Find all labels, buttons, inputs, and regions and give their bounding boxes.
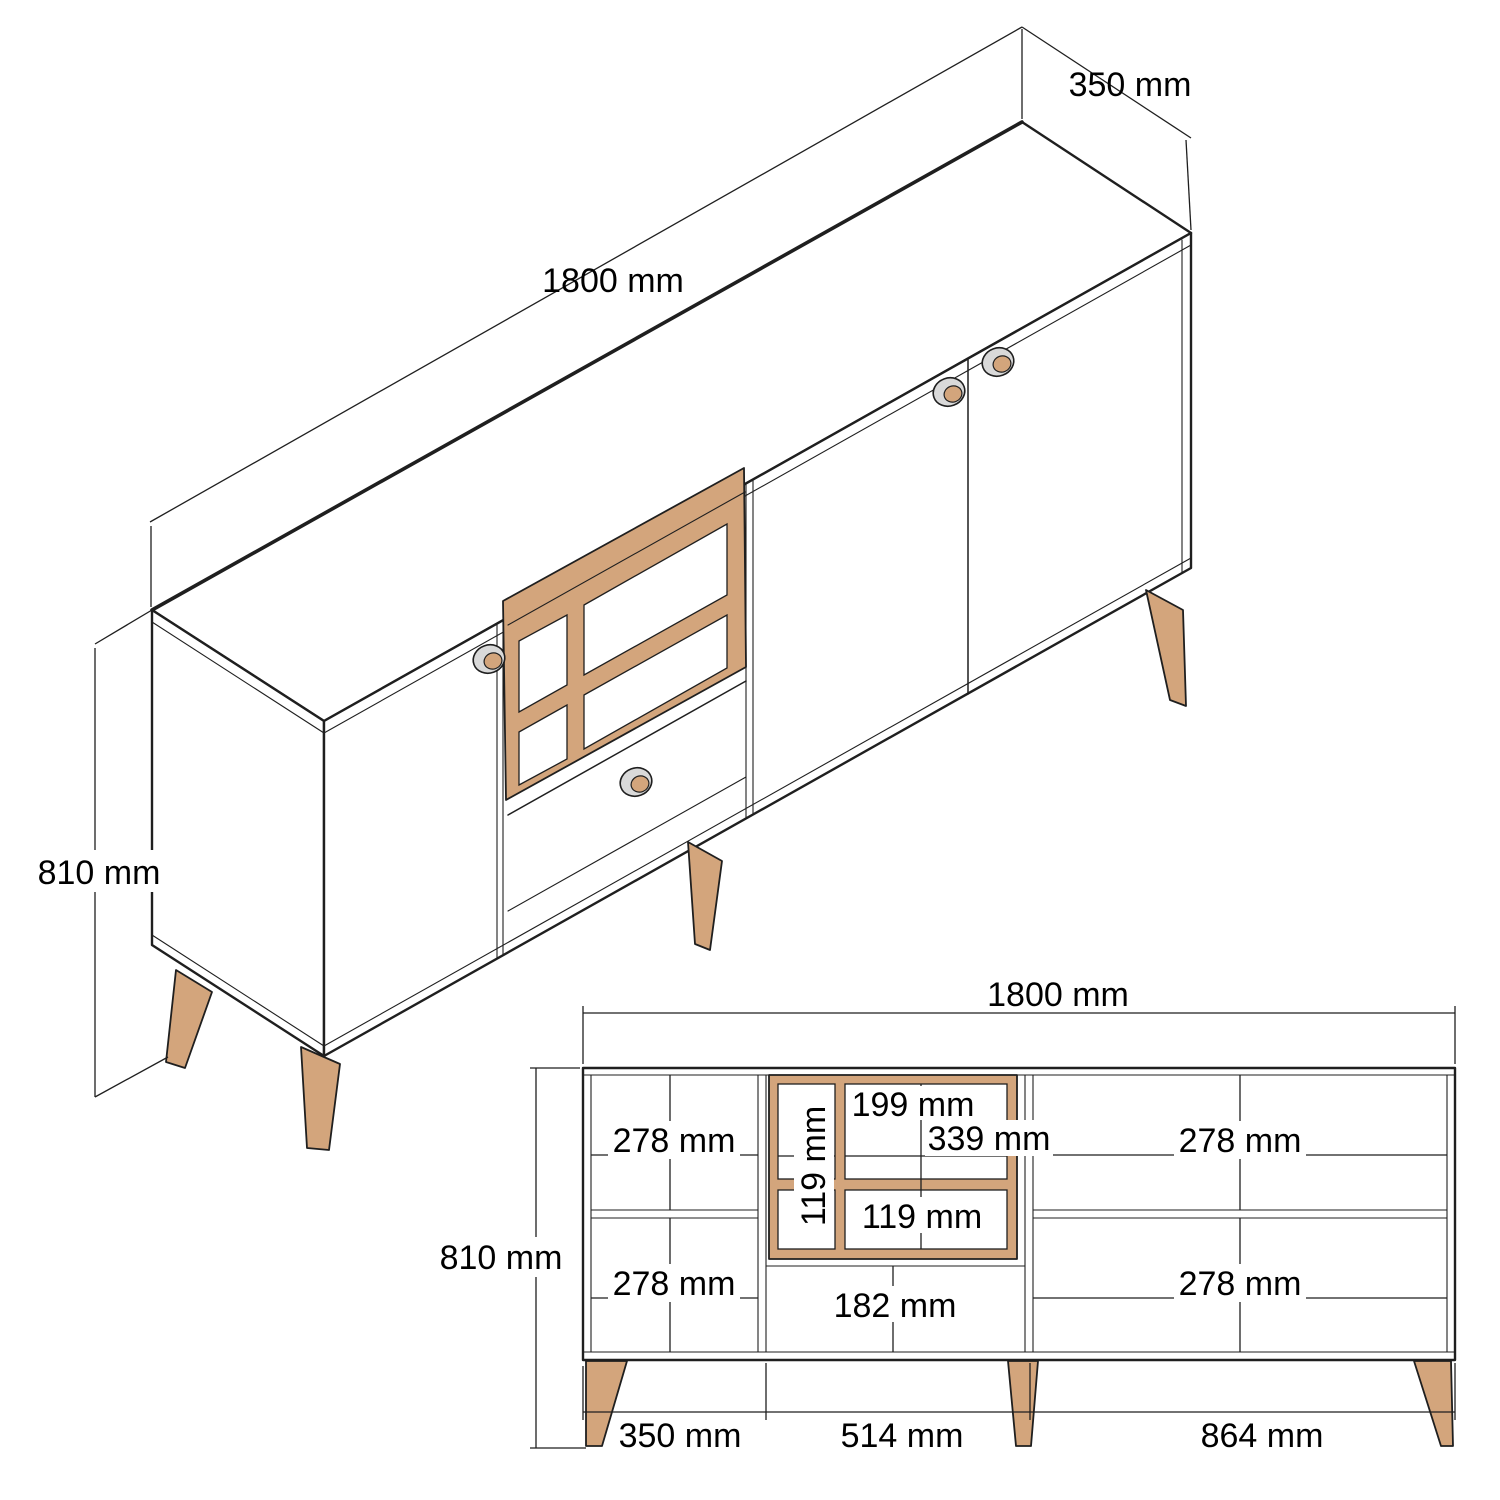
- furniture-dimension-diagram: 1800 mm 350 mm 810 mm: [0, 0, 1500, 1500]
- niche-left-cell-label: 119 mm: [795, 1106, 833, 1226]
- front-height-label: 810 mm: [440, 1239, 563, 1277]
- front-dim-width: 1800 mm: [583, 976, 1455, 1064]
- front-view: 1800 mm 810 mm 350 mm 514 mm 864 mm 278 …: [437, 976, 1455, 1455]
- leg: [1414, 1361, 1453, 1446]
- front-width-label: 1800 mm: [987, 976, 1129, 1014]
- niche-bottom-cell-label: 119 mm: [862, 1198, 982, 1236]
- niche-width-label: 339 mm: [928, 1120, 1051, 1158]
- footprint-left-label: 350 mm: [619, 1417, 742, 1455]
- iso-width-label: 1800 mm: [542, 262, 684, 300]
- niche-top-cell-label: 199 mm: [852, 1086, 975, 1124]
- right-top-cell-label: 278 mm: [1179, 1122, 1302, 1160]
- leg: [688, 842, 722, 950]
- footprint-right-label: 864 mm: [1201, 1417, 1324, 1455]
- left-top-cell-label: 278 mm: [613, 1122, 736, 1160]
- iso-dim-height: 810 mm: [33, 610, 168, 1097]
- iso-height-label: 810 mm: [38, 854, 161, 892]
- footprint-middle-label: 514 mm: [841, 1417, 964, 1455]
- leg: [1146, 590, 1186, 706]
- cabinet-front-outline: [583, 1068, 1455, 1360]
- left-bottom-cell-label: 278 mm: [613, 1265, 736, 1303]
- leg: [301, 1047, 340, 1150]
- leg: [1008, 1361, 1038, 1446]
- iso-depth-label: 350 mm: [1069, 66, 1192, 104]
- drawer-height-label: 182 mm: [834, 1287, 957, 1325]
- front-dim-height: 810 mm: [437, 1068, 586, 1448]
- right-bottom-cell-label: 278 mm: [1179, 1265, 1302, 1303]
- leg: [166, 970, 212, 1068]
- diagram-canvas: 1800 mm 350 mm 810 mm: [0, 0, 1500, 1500]
